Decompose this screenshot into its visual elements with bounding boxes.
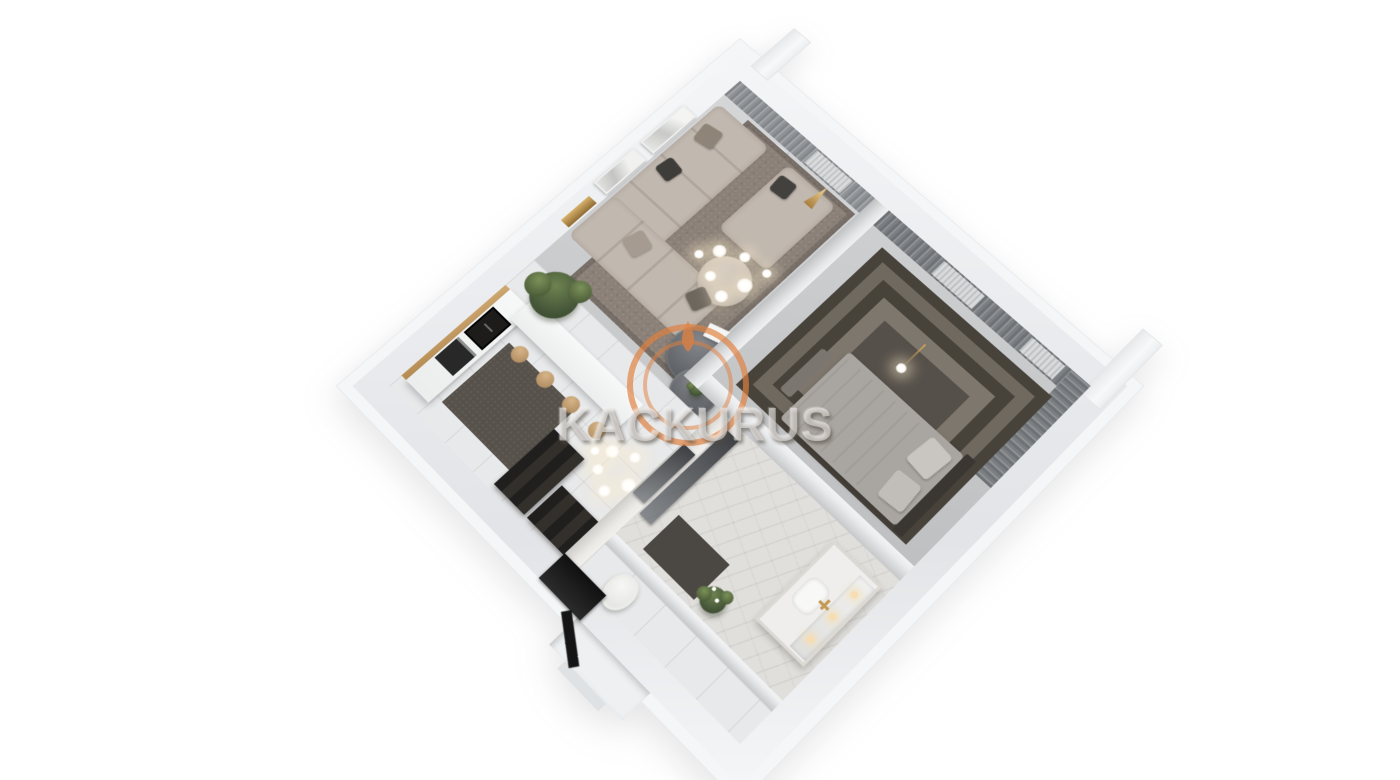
- vanity: [755, 540, 882, 667]
- plant-flower: [711, 586, 717, 592]
- plant-flower: [714, 598, 720, 604]
- floorplan-render: KACKURUS: [0, 0, 1400, 780]
- mirror-light: [805, 634, 816, 644]
- balcony-divider-wall-right: [1081, 330, 1161, 409]
- watermark-text: KACKURUS: [557, 397, 834, 452]
- mirror-light: [827, 612, 837, 622]
- balcony-divider-wall-top: [752, 29, 810, 80]
- mirror-light: [849, 590, 859, 600]
- bathroom-plant: [694, 581, 733, 619]
- cooktop-control: [484, 323, 493, 332]
